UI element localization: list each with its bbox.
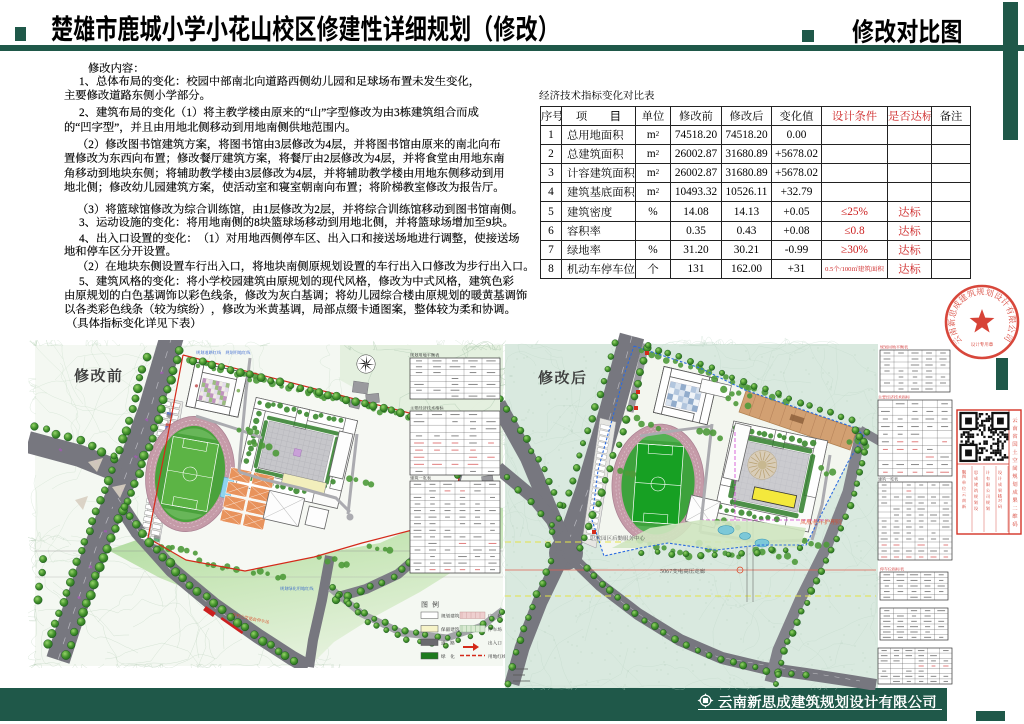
- svg-text:云南省国土空间规划成果二维码: 云南省国土空间规划成果二维码: [1011, 416, 1019, 528]
- svg-text:修改后: 修改后: [538, 367, 588, 388]
- svg-text:5067变电高压走廊: 5067变电高压走廊: [660, 567, 706, 575]
- svg-text:停车位指标表: 停车位指标表: [880, 567, 904, 573]
- svg-text:规划道路红线 规划用地红线: 规划道路红线 规划用地红线: [196, 350, 251, 356]
- svg-text:制图单位云南新: 制图单位云南新: [961, 469, 967, 511]
- svg-text:职教园区后勤服务中心: 职教园区后勤服务中心: [590, 534, 646, 542]
- svg-text:绿 化: 绿 化: [441, 654, 455, 660]
- svg-text:建筑一览表: 建筑一览表: [410, 476, 432, 482]
- svg-text:主要经济技术指标: 主要经济技术指标: [410, 406, 444, 412]
- svg-text:规划建筑: 规划建筑: [441, 614, 460, 620]
- svg-text:设计专用章: 设计专用章: [971, 341, 994, 348]
- svg-text:凤凰老年护理院: 凤凰老年护理院: [800, 517, 842, 526]
- svg-text:计有限公司规划: 计有限公司规划: [985, 470, 991, 512]
- svg-text:思成建筑规划设: 思成建筑规划设: [973, 470, 979, 512]
- svg-text:图例: 图例: [421, 600, 443, 610]
- svg-text:规划用地平衡表: 规划用地平衡表: [410, 353, 440, 359]
- svg-text:主要经济技术指标: 主要经济技术指标: [878, 395, 911, 401]
- svg-text:保留建筑: 保留建筑: [441, 627, 460, 633]
- svg-text:规划用地平衡表: 规划用地平衡表: [880, 345, 908, 351]
- svg-text:修改前: 修改前: [74, 365, 124, 386]
- svg-text:建筑一览表: 建筑一览表: [878, 477, 898, 483]
- svg-text:设计成果核对码: 设计成果核对码: [997, 470, 1003, 510]
- svg-text:道 路: 道 路: [441, 641, 455, 647]
- svg-text:规划绿化用地红线: 规划绿化用地红线: [280, 586, 314, 592]
